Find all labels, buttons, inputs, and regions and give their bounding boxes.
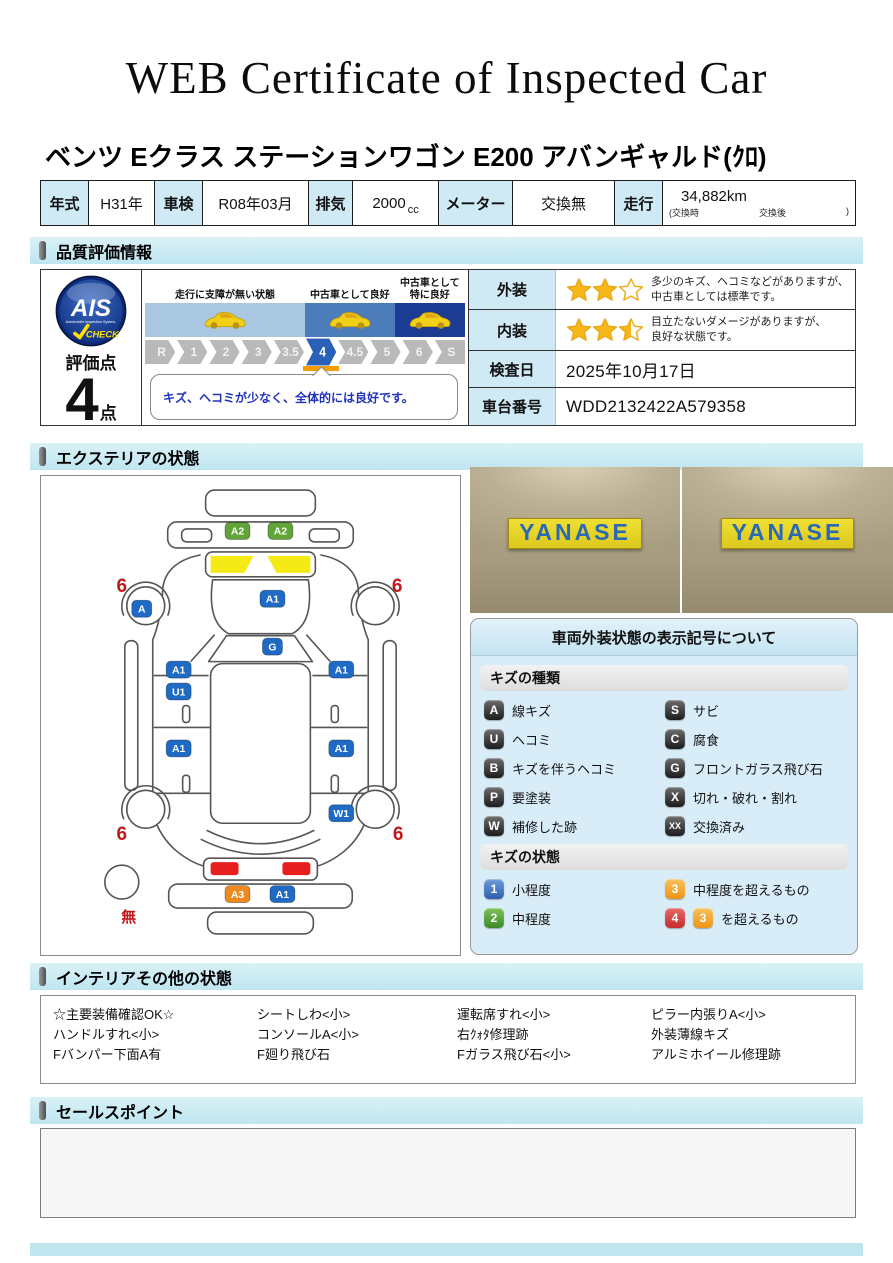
svg-text:A1: A1 bbox=[335, 744, 349, 755]
spec-label-車検: 車検 bbox=[155, 181, 203, 225]
damage-badge-A1: A1 bbox=[329, 661, 354, 678]
legend-state-list: 1小程度3中程度を超えるもの2中程度43を超えるもの bbox=[480, 877, 848, 932]
exterior-rating-row: 外装 多少のキズ、ヘコミなどがありますが、 中古車としては標準です。 bbox=[468, 270, 855, 310]
section-header-sales: セールスポイント bbox=[30, 1097, 863, 1124]
rating-zone-2: 中古車として 特に良好 bbox=[395, 273, 465, 337]
scale-step-1: 1 bbox=[177, 340, 207, 364]
legend-kind-label: サビ bbox=[693, 701, 719, 720]
ais-logo-icon: AIS Automobile Inspection System, CHECK bbox=[48, 274, 134, 348]
section-marker-icon bbox=[39, 447, 46, 466]
damage-badge-A1: A1 bbox=[329, 740, 354, 757]
svg-text:G: G bbox=[268, 642, 276, 653]
legend-kind-C: C腐食 bbox=[665, 729, 846, 749]
legend-kind-label: ヘコミ bbox=[512, 730, 551, 749]
damage-legend-panel: 車両外装状態の表示記号について キズの種類 A線キズSサビUヘコミC腐食Bキズを… bbox=[470, 618, 858, 955]
quality-evaluation-panel: AIS Automobile Inspection System, CHECK … bbox=[40, 269, 856, 426]
damage-badge-A2: A2 bbox=[225, 522, 250, 539]
legend-code-badge: P bbox=[484, 787, 504, 807]
spec-label-排気: 排気 bbox=[309, 181, 353, 225]
legend-code-badge: B bbox=[484, 758, 504, 778]
section-title: 品質評価情報 bbox=[56, 239, 152, 263]
interior-notes-column-0: ☆主要装備確認OK☆ハンドルすれ<小>Fバンパー下面A有 bbox=[53, 1005, 174, 1065]
legend-kind-G: Gフロントガラス飛び石 bbox=[665, 758, 846, 778]
sales-point-panel bbox=[40, 1128, 856, 1218]
legend-state-badge: 3 bbox=[693, 908, 713, 928]
rating-zones: 走行に支障が無い状態中古車として良好中古車として 特に良好 bbox=[145, 273, 465, 337]
car-icon bbox=[203, 310, 247, 330]
mileage-value: 34,882km bbox=[669, 188, 849, 205]
spare-tire-label: 無 bbox=[121, 908, 136, 926]
damage-badge-W1: W1 bbox=[329, 805, 354, 822]
spec-table: 年式H31年車検R08年03月排気2000ccメーター交換無走行34,882km… bbox=[40, 180, 856, 226]
bottom-accent-bar bbox=[30, 1243, 863, 1256]
quality-detail-table: 外装 多少のキズ、ヘコミなどがありますが、 中古車としては標準です。 内装 目立… bbox=[468, 270, 855, 425]
interior-note-line: 外装薄線キズ bbox=[651, 1025, 781, 1045]
legend-code-badge: XX bbox=[665, 816, 685, 836]
legend-state-badge: 2 bbox=[484, 908, 504, 928]
spec-label-メーター: メーター bbox=[439, 181, 513, 225]
legend-state: 2中程度 bbox=[484, 908, 665, 928]
exterior-rating-comment: 多少のキズ、ヘコミなどがありますが、 中古車としては標準です。 bbox=[651, 275, 849, 305]
legend-kind-label: 線キズ bbox=[512, 701, 551, 720]
legend-kind-B: Bキズを伴うヘコミ bbox=[484, 758, 665, 778]
empty-star-icon bbox=[618, 277, 644, 303]
spec-value: 34,882km(交換時交換後) bbox=[663, 181, 855, 225]
section-title: エクステリアの状態 bbox=[56, 445, 200, 469]
damage-badge-A2: A2 bbox=[268, 522, 293, 539]
car-icon bbox=[408, 310, 452, 330]
interior-note-line: ピラー内張りA<小> bbox=[651, 1005, 781, 1025]
svg-text:AIS: AIS bbox=[70, 295, 111, 322]
spec-unit: cc bbox=[408, 204, 419, 216]
interior-star-rating bbox=[566, 317, 644, 343]
scale-step-5: 5 bbox=[370, 340, 400, 364]
yanase-sign: YANASE bbox=[508, 518, 642, 549]
car-icon bbox=[328, 310, 372, 330]
svg-text:U1: U1 bbox=[172, 687, 186, 698]
legend-title: 車両外装状態の表示記号について bbox=[471, 619, 857, 656]
damage-badge-A1: A1 bbox=[260, 590, 285, 607]
svg-text:A1: A1 bbox=[172, 665, 186, 676]
legend-state-badge: 1 bbox=[484, 879, 504, 899]
interior-note-line: 運転席すれ<小> bbox=[457, 1005, 571, 1025]
vehicle-name: ベンツ Eクラス ステーションワゴン E200 アバンギャルド(ｸﾛ) bbox=[45, 137, 767, 174]
exterior-diagram-panel: A2A2AA1GA1U1A1A1A1W1A3A1 6666無 bbox=[40, 475, 461, 956]
section-header-exterior: エクステリアの状態 bbox=[30, 443, 863, 470]
score-comment-bubble: キズ、ヘコミが少なく、全体的には良好です。 bbox=[150, 374, 458, 420]
legend-kind-P: P要塗装 bbox=[484, 787, 665, 807]
vin-value: WDD2132422A579358 bbox=[556, 388, 855, 425]
interior-rating-row: 内装 目立たないダメージがありますが、 良好な状態です。 bbox=[468, 310, 855, 351]
interior-rating-comment: 目立たないダメージがありますが、 良好な状態です。 bbox=[651, 315, 826, 345]
legend-state-badge: 4 bbox=[665, 908, 685, 928]
legend-kind-label: 要塗装 bbox=[512, 788, 551, 807]
legend-kind-label: 腐食 bbox=[693, 730, 719, 749]
legend-state-label: 中程度を超えるもの bbox=[693, 880, 810, 899]
svg-text:A1: A1 bbox=[266, 595, 280, 606]
scale-step-3.5: 3.5 bbox=[274, 340, 304, 364]
legend-kind-U: Uヘコミ bbox=[484, 729, 665, 749]
svg-text:A2: A2 bbox=[231, 527, 245, 538]
svg-text:A1: A1 bbox=[335, 665, 349, 676]
inspection-date-value: 2025年10月17日 bbox=[556, 351, 855, 387]
zone-label: 中古車として 特に良好 bbox=[395, 273, 465, 303]
interior-note-line: コンソールA<小> bbox=[257, 1025, 359, 1045]
damage-badge-A1: A1 bbox=[166, 740, 191, 757]
zone-band bbox=[395, 303, 465, 337]
rating-zone-0: 走行に支障が無い状態 bbox=[145, 273, 305, 337]
interior-notes-column-1: シートしわ<小>コンソールA<小>F廻り飛び石 bbox=[257, 1005, 359, 1065]
legend-code-badge: W bbox=[484, 816, 504, 836]
interior-note-line: ハンドルすれ<小> bbox=[53, 1025, 174, 1045]
legend-kind-label: 交換済み bbox=[693, 817, 745, 836]
page-title: WEB Certificate of Inspected Car bbox=[0, 52, 893, 104]
damage-badge-A3: A3 bbox=[225, 886, 250, 903]
legend-code-badge: U bbox=[484, 729, 504, 749]
rating-scale-cell: 走行に支障が無い状態中古車として良好中古車として 特に良好 R1233.544.… bbox=[142, 270, 468, 425]
legend-code-badge: X bbox=[665, 787, 685, 807]
interior-notes-column-2: 運転席すれ<小>右ｸｫﾀ修理跡Fガラス飛び石<小> bbox=[457, 1005, 571, 1065]
legend-code-badge: G bbox=[665, 758, 685, 778]
svg-text:W1: W1 bbox=[333, 809, 349, 820]
scale-step-4.5: 4.5 bbox=[338, 340, 368, 364]
score-value: 4 点 bbox=[65, 374, 116, 425]
ais-score-cell: AIS Automobile Inspection System, CHECK … bbox=[41, 270, 142, 425]
exterior-photo-left: YANASE bbox=[470, 467, 680, 613]
svg-text:Automobile Inspection System,: Automobile Inspection System, bbox=[66, 320, 117, 324]
legend-kind-XX: XX交換済み bbox=[665, 816, 846, 836]
exterior-photo-right: YANASE bbox=[682, 467, 893, 613]
interior-note-line: シートしわ<小> bbox=[257, 1005, 359, 1025]
svg-text:A1: A1 bbox=[276, 890, 290, 901]
interior-note-line: Fガラス飛び石<小> bbox=[457, 1045, 571, 1065]
legend-state-label: 小程度 bbox=[512, 880, 551, 899]
legend-code-badge: A bbox=[484, 700, 504, 720]
svg-text:A3: A3 bbox=[231, 890, 245, 901]
damage-badge-A1: A1 bbox=[270, 886, 295, 903]
section-marker-icon bbox=[39, 967, 46, 986]
row-label: 車台番号 bbox=[468, 388, 556, 425]
svg-text:A2: A2 bbox=[274, 527, 288, 538]
legend-kind-W: W補修した跡 bbox=[484, 816, 665, 836]
legend-state-label: 中程度 bbox=[512, 909, 551, 928]
rating-scale: R1233.544.556S bbox=[145, 340, 465, 364]
row-label: 内装 bbox=[468, 310, 556, 350]
legend-code-badge: S bbox=[665, 700, 685, 720]
zone-band bbox=[305, 303, 395, 337]
spec-value: 交換無 bbox=[513, 181, 615, 225]
legend-state: 3中程度を超えるもの bbox=[665, 879, 846, 899]
exterior-star-rating bbox=[566, 277, 644, 303]
section-marker-icon bbox=[39, 1101, 46, 1120]
car-outline bbox=[105, 490, 399, 934]
interior-note-line: アルミホイール修理跡 bbox=[651, 1045, 781, 1065]
legend-kind-list: A線キズSサビUヘコミC腐食Bキズを伴うヘコミGフロントガラス飛び石P要塗装X切… bbox=[480, 698, 848, 840]
interior-notes-column-3: ピラー内張りA<小>外装薄線キズアルミホイール修理跡 bbox=[651, 1005, 781, 1065]
tire-depth-label: 6 bbox=[117, 576, 128, 597]
section-header-interior: インテリアその他の状態 bbox=[30, 963, 863, 990]
interior-notes-panel: ☆主要装備確認OK☆ハンドルすれ<小>Fバンパー下面A有シートしわ<小>コンソー… bbox=[40, 995, 856, 1084]
section-title: セールスポイント bbox=[56, 1099, 184, 1123]
damage-badge-U1: U1 bbox=[166, 683, 191, 700]
score-number: 4 bbox=[65, 374, 98, 425]
legend-kind-label: 切れ・破れ・割れ bbox=[693, 788, 797, 807]
tire-depth-label: 6 bbox=[393, 824, 404, 845]
legend-kind-label: 補修した跡 bbox=[512, 817, 577, 836]
interior-note-line: F廻り飛び石 bbox=[257, 1045, 359, 1065]
scale-step-S: S bbox=[435, 340, 465, 364]
spec-value: 2000cc bbox=[353, 181, 439, 225]
rating-zone-1: 中古車として良好 bbox=[305, 273, 395, 337]
legend-state: 1小程度 bbox=[484, 879, 665, 899]
scale-step-R: R bbox=[145, 340, 175, 364]
mileage-exchange-note: (交換時交換後) bbox=[669, 206, 849, 219]
legend-code-badge: C bbox=[665, 729, 685, 749]
scale-step-6: 6 bbox=[403, 340, 433, 364]
tire-depth-label: 6 bbox=[392, 576, 403, 597]
legend-kind-label: フロントガラス飛び石 bbox=[693, 759, 823, 778]
interior-note-line: Fバンパー下面A有 bbox=[53, 1045, 174, 1065]
zone-label: 中古車として良好 bbox=[305, 273, 395, 303]
interior-note-line: ☆主要装備確認OK☆ bbox=[53, 1005, 174, 1025]
spec-value: R08年03月 bbox=[203, 181, 309, 225]
svg-text:A: A bbox=[138, 605, 146, 616]
legend-state-label: を超えるもの bbox=[721, 909, 799, 928]
score-unit: 点 bbox=[100, 407, 117, 421]
legend-state-header: キズの状態 bbox=[480, 844, 848, 870]
vin-row: 車台番号 WDD2132422A579358 bbox=[468, 388, 855, 425]
svg-text:A1: A1 bbox=[172, 744, 186, 755]
spec-label-走行: 走行 bbox=[615, 181, 663, 225]
half-star-icon bbox=[618, 317, 644, 343]
scale-step-2: 2 bbox=[209, 340, 239, 364]
svg-text:CHECK: CHECK bbox=[86, 330, 120, 340]
spec-label-年式: 年式 bbox=[41, 181, 89, 225]
full-star-icon bbox=[592, 317, 618, 343]
scale-step-4: 4 bbox=[306, 339, 336, 366]
car-damage-diagram: A2A2AA1GA1U1A1A1A1W1A3A1 6666無 bbox=[41, 476, 460, 955]
legend-state: 43を超えるもの bbox=[665, 908, 846, 928]
full-star-icon bbox=[592, 277, 618, 303]
tire-depth-label: 6 bbox=[117, 824, 128, 845]
damage-badge-G: G bbox=[262, 638, 282, 655]
legend-kind-X: X切れ・破れ・割れ bbox=[665, 787, 846, 807]
spec-value: H31年 bbox=[89, 181, 155, 225]
section-header-quality: 品質評価情報 bbox=[30, 237, 863, 264]
zone-band bbox=[145, 303, 305, 337]
section-marker-icon bbox=[39, 241, 46, 260]
damage-badge-A: A bbox=[132, 600, 152, 617]
damage-badge-A1: A1 bbox=[166, 661, 191, 678]
zone-label: 走行に支障が無い状態 bbox=[145, 273, 305, 303]
interior-note-line: 右ｸｫﾀ修理跡 bbox=[457, 1025, 571, 1045]
full-star-icon bbox=[566, 317, 592, 343]
row-label: 外装 bbox=[468, 270, 556, 309]
legend-kind-S: Sサビ bbox=[665, 700, 846, 720]
legend-kind-A: A線キズ bbox=[484, 700, 665, 720]
full-star-icon bbox=[566, 277, 592, 303]
yanase-sign: YANASE bbox=[721, 518, 855, 549]
legend-state-badge: 3 bbox=[665, 879, 685, 899]
row-label: 検査日 bbox=[468, 351, 556, 387]
legend-kind-header: キズの種類 bbox=[480, 665, 848, 691]
scale-step-3: 3 bbox=[242, 340, 272, 364]
section-title: インテリアその他の状態 bbox=[56, 965, 232, 989]
inspection-date-row: 検査日 2025年10月17日 bbox=[468, 351, 855, 388]
legend-kind-label: キズを伴うヘコミ bbox=[512, 759, 616, 778]
